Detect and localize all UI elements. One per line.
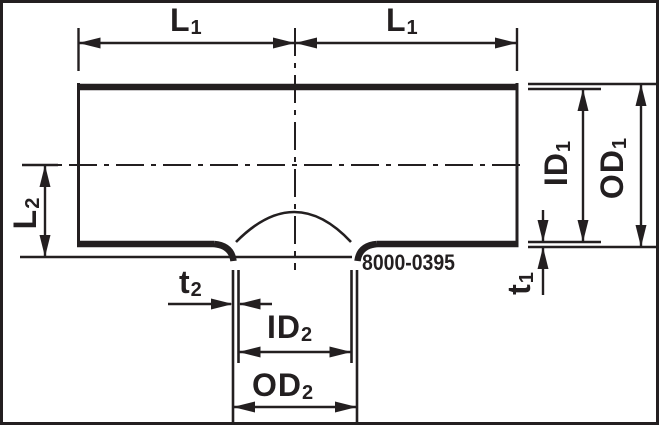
id2-arrow-right bbox=[330, 347, 352, 358]
id1-arrow-bottom bbox=[578, 220, 589, 242]
centerlines bbox=[22, 28, 523, 270]
l1-arrow-center-right bbox=[295, 38, 317, 49]
part-number: 8000-0395 bbox=[362, 250, 455, 275]
t2-arrow-left bbox=[239, 299, 261, 310]
t1-arrow-up bbox=[538, 247, 549, 269]
tee-fitting-drawing: L1 L1 L2 ID1 OD1 t1 bbox=[0, 0, 659, 425]
tee-drawing-page: L1 L1 L2 ID1 OD1 t1 bbox=[0, 0, 659, 425]
od2-arrow-right bbox=[335, 402, 357, 413]
dimension-id1: ID1 bbox=[528, 89, 601, 242]
label-id2: ID2 bbox=[267, 309, 313, 346]
l1-arrow-left bbox=[79, 38, 101, 49]
label-t1: t1 bbox=[501, 271, 538, 295]
od2-arrow-left bbox=[233, 402, 255, 413]
od1-arrow-bottom bbox=[636, 225, 647, 247]
label-id1: ID1 bbox=[538, 140, 575, 186]
main-run-outline bbox=[77, 83, 519, 261]
label-t2: t2 bbox=[179, 264, 203, 301]
branch-saddle-arc bbox=[236, 212, 351, 242]
dimension-t2: t2 bbox=[168, 264, 272, 310]
dimension-l1: L1 L1 bbox=[79, 2, 518, 71]
l1-arrow-center-left bbox=[273, 38, 295, 49]
l2-arrow-bottom bbox=[40, 235, 51, 257]
label-l1-right: L1 bbox=[386, 2, 419, 39]
dimension-t1: t1 bbox=[501, 210, 549, 295]
drawing-border bbox=[2, 2, 658, 424]
label-od1: OD1 bbox=[594, 137, 631, 199]
t1-arrow-down bbox=[538, 220, 549, 242]
dimension-od2: OD2 bbox=[233, 367, 357, 413]
t2-arrow-right bbox=[211, 299, 233, 310]
label-l2: L2 bbox=[7, 197, 44, 230]
dimension-id2: ID2 bbox=[239, 309, 352, 358]
label-l1-left: L1 bbox=[170, 2, 203, 39]
l1-arrow-right bbox=[495, 38, 517, 49]
id2-arrow-left bbox=[239, 347, 261, 358]
od1-arrow-top bbox=[636, 84, 647, 106]
label-od2: OD2 bbox=[252, 367, 314, 404]
l2-arrow-top bbox=[40, 165, 51, 187]
id1-arrow-top bbox=[578, 89, 589, 111]
branch-fillet-left bbox=[214, 244, 234, 261]
